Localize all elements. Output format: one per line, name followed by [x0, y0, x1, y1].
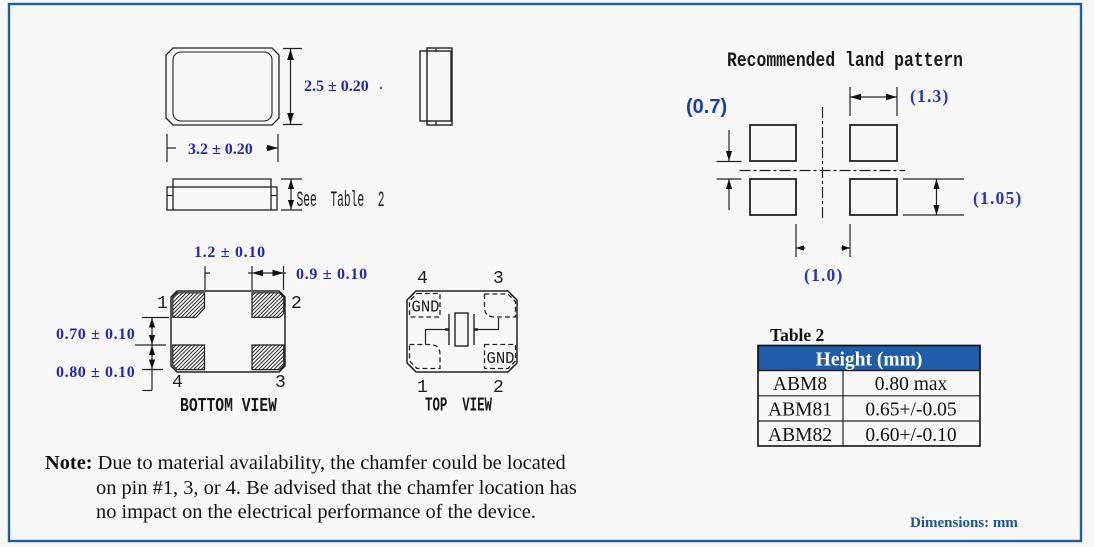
svg-text:Height (mm): Height (mm): [816, 350, 923, 371]
svg-text:See Table 2: See Table 2: [297, 188, 385, 213]
svg-text:4: 4: [172, 373, 183, 393]
svg-text:(1.3): (1.3): [910, 86, 950, 106]
svg-text:0.60+/-0.10: 0.60+/-0.10: [865, 425, 956, 446]
svg-text:GND: GND: [487, 350, 515, 369]
svg-text:3: 3: [275, 373, 286, 393]
svg-text:TOP VIEW: TOP VIEW: [425, 395, 492, 417]
svg-text:on pin #1, 3, or 4. Be advised: on pin #1, 3, or 4. Be advised that the …: [96, 477, 577, 499]
svg-text:2: 2: [493, 378, 504, 398]
svg-text:2.5 ± 0.20: 2.5 ± 0.20: [304, 78, 369, 95]
svg-text:3.2 ± 0.20: 3.2 ± 0.20: [188, 141, 253, 158]
svg-text:0.80 ± 0.10: 0.80 ± 0.10: [56, 364, 135, 381]
svg-text:0.70 ± 0.10: 0.70 ± 0.10: [56, 326, 135, 343]
svg-text:3: 3: [493, 269, 504, 289]
svg-text:(1.05): (1.05): [973, 188, 1022, 208]
svg-text:GND: GND: [412, 299, 440, 318]
svg-text:ABM82: ABM82: [768, 425, 832, 446]
svg-text:no impact on the electrical pe: no impact on the electrical performance …: [96, 501, 536, 523]
svg-text:ABM81: ABM81: [768, 400, 832, 421]
svg-text:1: 1: [157, 294, 168, 314]
svg-text:(1.0): (1.0): [804, 265, 844, 285]
svg-text:Table 2: Table 2: [770, 325, 824, 345]
svg-text:0.65+/-0.05: 0.65+/-0.05: [865, 400, 956, 421]
svg-text:Note: Due to material availabi: Note: Due to material availability, the …: [45, 452, 566, 474]
svg-text:4: 4: [417, 269, 428, 289]
svg-text:(0.7): (0.7): [686, 96, 727, 118]
svg-text:2: 2: [291, 294, 302, 314]
svg-text:Recommended land pattern: Recommended land pattern: [727, 50, 963, 73]
svg-text:0.80 max: 0.80 max: [875, 374, 948, 395]
svg-text:0.9 ± 0.10: 0.9 ± 0.10: [296, 266, 368, 283]
svg-text:BOTTOM VIEW: BOTTOM VIEW: [180, 395, 277, 417]
svg-text:1.2 ± 0.10: 1.2 ± 0.10: [194, 244, 266, 261]
svg-text:ABM8: ABM8: [773, 374, 827, 395]
svg-text:Dimensions: mm: Dimensions: mm: [910, 515, 1018, 531]
